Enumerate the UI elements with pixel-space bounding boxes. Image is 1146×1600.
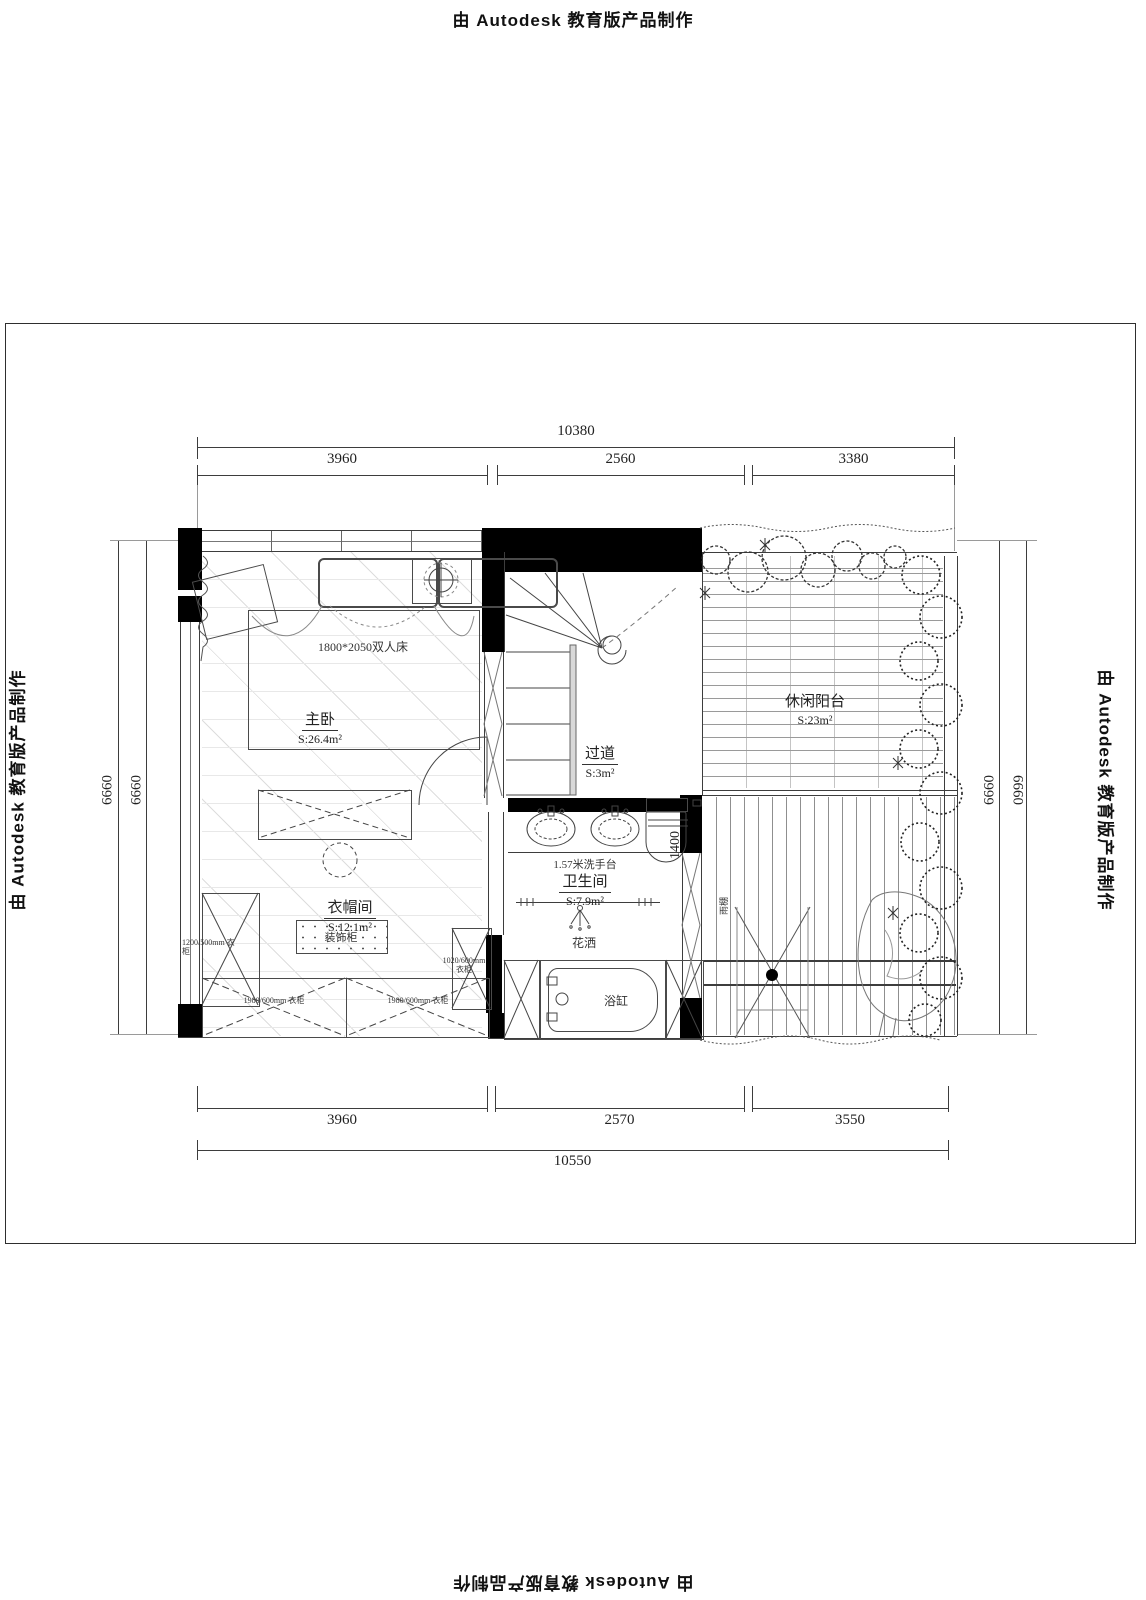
toilet-tank <box>646 798 688 812</box>
bed-label: 1800*2050双人床 <box>253 638 473 655</box>
dim-top-seg2: 2560 <box>497 452 744 467</box>
balcony-bottom-line <box>702 790 957 791</box>
room-area: S:12.1m² <box>280 920 420 935</box>
dim-line <box>118 540 119 1035</box>
room-area: S:7.9m² <box>525 894 645 909</box>
dresser <box>258 790 412 840</box>
room-area: S:3m² <box>540 766 660 781</box>
room-name: 衣帽间 <box>324 896 375 919</box>
wall-segment <box>178 1004 202 1038</box>
canopy-bottom-line <box>702 1036 957 1037</box>
room-name: 过道 <box>582 742 618 765</box>
dim-line <box>497 475 744 476</box>
wall-segment <box>488 1013 504 1038</box>
dim-top-seg3: 3380 <box>752 452 955 467</box>
room-name: 卫生间 <box>559 870 610 893</box>
dim-line <box>197 447 955 448</box>
room-label-master: 主卧 S:26.4m² <box>250 708 390 747</box>
wardrobe-label: 1980/600mm 衣柜 <box>376 996 460 1005</box>
room-area: S:26.4m² <box>250 732 390 747</box>
wardrobe <box>346 978 490 1038</box>
cad-canvas: 由 Autodesk 教育版产品制作 由 Autodesk 教育版产品制作 由 … <box>0 0 1146 1600</box>
wardrobe-label: 1200/500mm 衣柜 <box>182 938 240 956</box>
dim-witness <box>948 1140 949 1160</box>
dim-witness <box>957 540 1037 541</box>
shower-label: 花洒 <box>556 934 612 951</box>
dim-witness <box>110 540 178 541</box>
balcony-paving <box>703 556 943 788</box>
dim-bottom-total: 10550 <box>197 1154 948 1169</box>
dim-witness <box>197 1086 198 1112</box>
room-label-balcony: 休闲阳台 S:23m² <box>745 690 885 728</box>
dim-extension <box>197 485 198 529</box>
balcony-railing <box>944 556 958 1036</box>
room-name: 休闲阳台 <box>782 690 848 712</box>
dim-line <box>197 1150 948 1151</box>
dim-line <box>752 475 955 476</box>
room-label-corridor: 过道 S:3m² <box>540 742 660 781</box>
dim-line <box>1026 540 1027 1035</box>
room-name: 主卧 <box>302 708 338 731</box>
dim-extension <box>954 485 955 551</box>
bathtub-label: 浴缸 <box>584 992 648 1009</box>
wardrobe <box>202 978 347 1038</box>
dim-line <box>197 1108 487 1109</box>
room-label-cloakroom: 衣帽间 S:12.1m² <box>280 896 420 935</box>
tub-side-panel <box>666 960 704 1040</box>
dim-right-1: 6660 <box>982 775 999 805</box>
dim-line <box>146 540 147 1035</box>
dim-witness <box>744 1086 745 1112</box>
room-label-bathroom: 卫生间 S:7.9m² <box>525 870 645 909</box>
dim-top-total: 10380 <box>197 424 955 439</box>
balcony-top-line <box>702 552 957 553</box>
corridor-balcony-line <box>702 552 703 795</box>
dim-bottom-seg1: 3960 <box>197 1113 487 1128</box>
dim-witness <box>948 1086 949 1112</box>
dim-line <box>495 1108 744 1109</box>
dim-bottom-seg2: 2570 <box>495 1113 744 1128</box>
dim-toilet: 1400 <box>668 831 684 859</box>
window-top <box>202 530 482 552</box>
dim-left-1: 6660 <box>100 775 117 805</box>
dim-left-2: 6660 <box>129 775 146 805</box>
dim-witness <box>497 465 498 485</box>
dim-top-seg1: 3960 <box>197 452 487 467</box>
dim-witness <box>957 1034 1037 1035</box>
dim-witness <box>487 465 488 485</box>
dim-witness <box>495 1086 496 1112</box>
balcony-inner-line <box>702 573 942 574</box>
dim-line <box>197 475 487 476</box>
washstand-counter <box>508 852 680 853</box>
dim-witness <box>744 465 745 485</box>
watermark-bottom: 由 Autodesk 教育版产品制作 <box>453 1572 694 1597</box>
wall-cloak-bath <box>488 812 504 935</box>
dim-witness <box>954 465 955 485</box>
canopy-label: 雨棚 <box>719 897 729 915</box>
dim-witness <box>197 465 198 485</box>
canopy-beam <box>703 984 956 986</box>
dim-witness <box>110 1034 178 1035</box>
dim-right-2: 6660 <box>1009 775 1026 805</box>
bedside-cabinet <box>412 558 472 604</box>
wardrobe-label: 1980/600mm 衣柜 <box>232 996 316 1005</box>
window-bedroom-corridor <box>484 652 504 798</box>
dim-bottom-seg3: 3550 <box>752 1113 948 1128</box>
wardrobe-label: 1020/600mm 衣柜 <box>438 956 490 974</box>
dim-witness <box>752 1086 753 1112</box>
dim-line <box>752 1108 948 1109</box>
tub-side-panel <box>504 960 540 1040</box>
dim-witness <box>752 465 753 485</box>
canopy-glass <box>703 797 956 1035</box>
dim-witness <box>487 1086 488 1112</box>
dim-line <box>999 540 1000 1035</box>
room-area: S:23m² <box>745 713 885 728</box>
watermark-top: 由 Autodesk 教育版产品制作 <box>453 6 694 31</box>
canopy-top-line <box>702 795 957 796</box>
canopy-beam <box>703 960 956 962</box>
